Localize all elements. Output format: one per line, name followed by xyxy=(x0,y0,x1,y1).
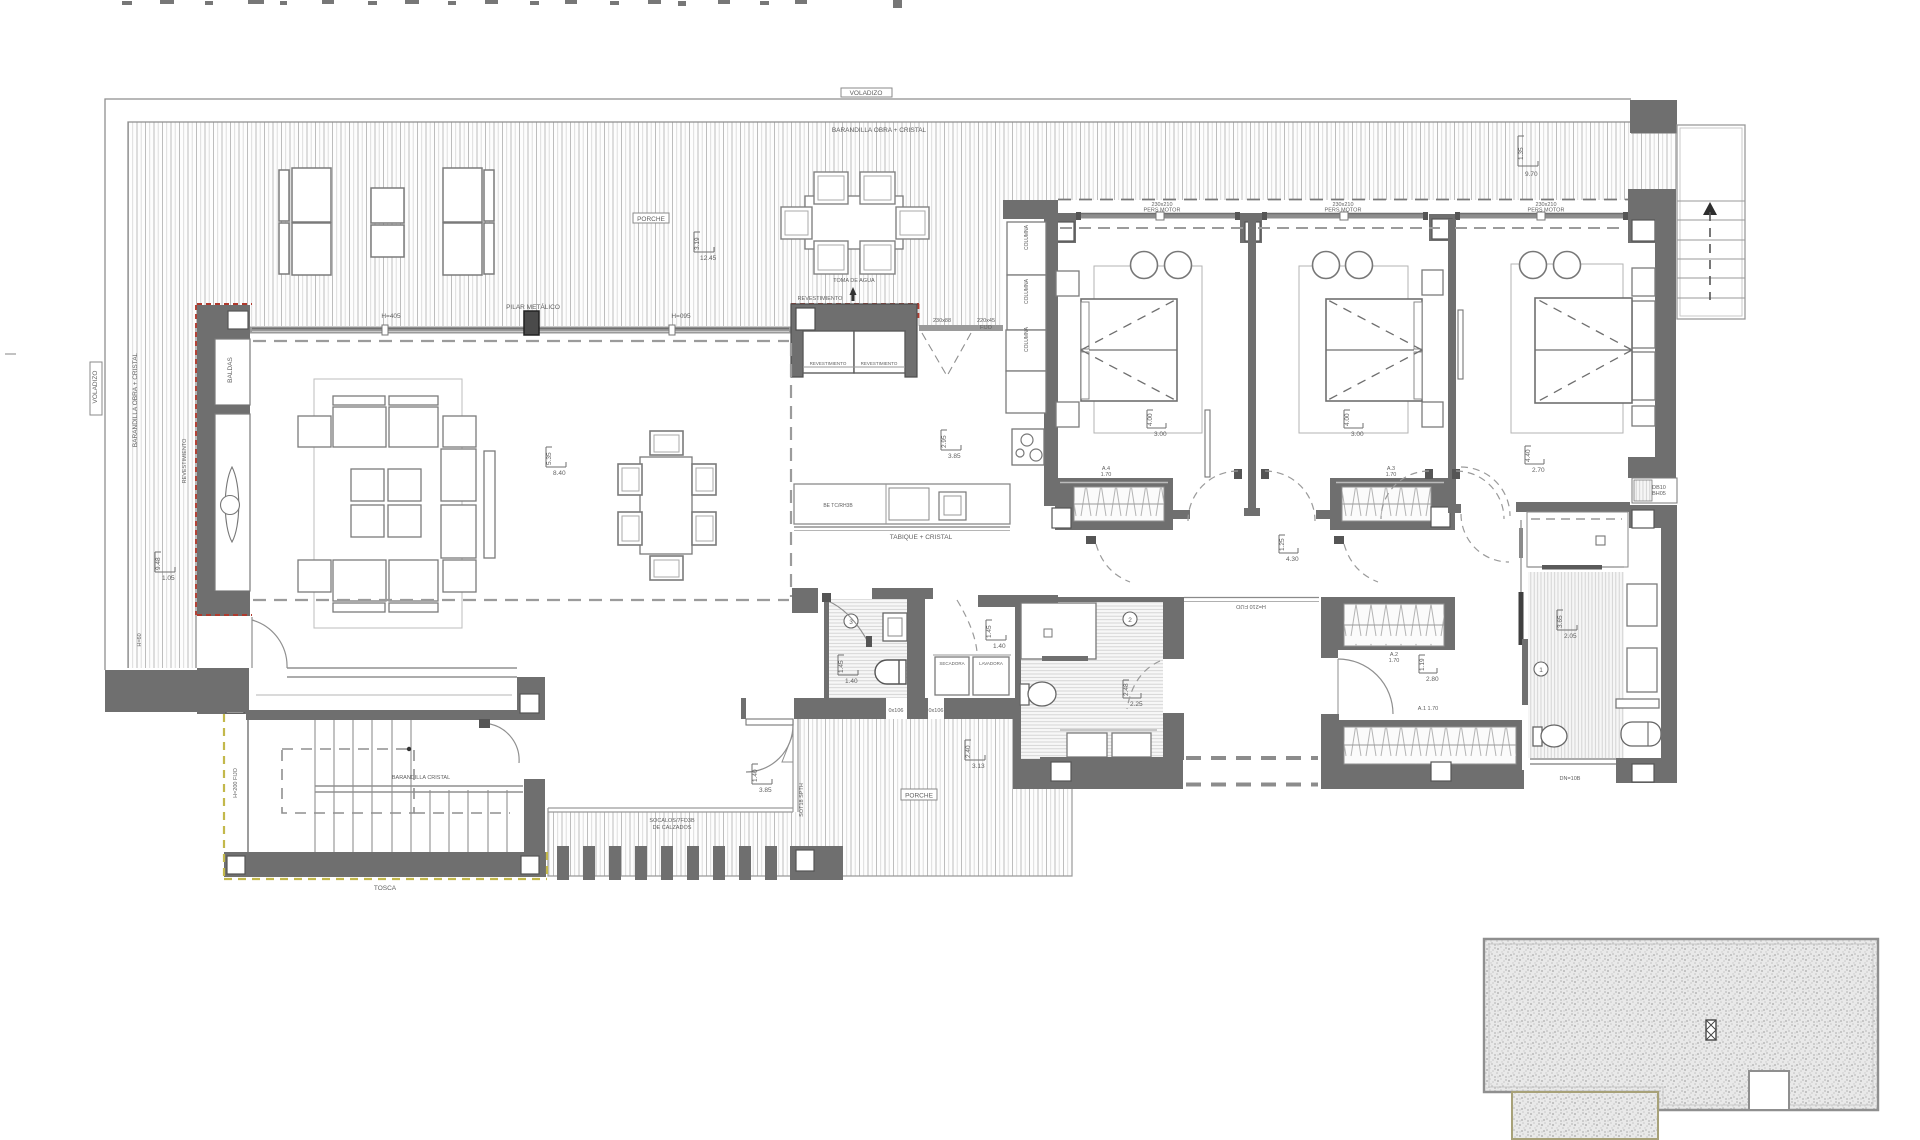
svg-text:3.00: 3.00 xyxy=(1351,431,1364,438)
svg-text:1.45: 1.45 xyxy=(838,660,845,673)
svg-text:230x88: 230x88 xyxy=(933,318,951,324)
svg-text:1.70: 1.70 xyxy=(1389,658,1400,664)
svg-text:TOSCA: TOSCA xyxy=(374,885,397,892)
svg-text:LAVADORA: LAVADORA xyxy=(979,661,1003,666)
svg-text:4.00: 4.00 xyxy=(1147,413,1154,426)
svg-text:12.45: 12.45 xyxy=(700,255,717,262)
svg-text:PORCHE: PORCHE xyxy=(637,216,665,223)
svg-text:PILAR METÁLICO: PILAR METÁLICO xyxy=(506,302,560,311)
svg-text:H=200 FIJO: H=200 FIJO xyxy=(233,767,239,798)
svg-text:BARANDILLA CRISTAL: BARANDILLA CRISTAL xyxy=(392,775,450,781)
svg-text:H=095: H=095 xyxy=(671,313,691,320)
svg-text:1.40: 1.40 xyxy=(993,643,1006,650)
svg-text:8.40: 8.40 xyxy=(553,470,566,477)
svg-text:DE CALZADOS: DE CALZADOS xyxy=(653,825,692,831)
svg-text:4.00: 4.00 xyxy=(1344,413,1351,426)
svg-text:COLUMNA: COLUMNA xyxy=(1024,326,1030,352)
svg-text:DN=10B: DN=10B xyxy=(1560,776,1581,782)
svg-text:BALDAS: BALDAS xyxy=(227,357,234,383)
svg-text:BE TC/RH3B: BE TC/RH3B xyxy=(823,503,853,509)
svg-text:2.80: 2.80 xyxy=(1426,676,1439,683)
svg-text:220x45: 220x45 xyxy=(977,318,995,324)
svg-text:PERS MOTOR: PERS MOTOR xyxy=(1528,208,1565,214)
svg-text:REVESTIMIENTO: REVESTIMIENTO xyxy=(810,361,847,366)
svg-text:1.25: 1.25 xyxy=(1279,538,1286,551)
svg-text:1.45: 1.45 xyxy=(986,625,993,638)
svg-text:REVESTIMIENTO: REVESTIMIENTO xyxy=(182,438,188,484)
svg-text:3.85: 3.85 xyxy=(759,787,772,794)
svg-text:4.40: 4.40 xyxy=(1525,449,1532,462)
svg-text:1.35: 1.35 xyxy=(1518,147,1525,160)
svg-text:REVESTIMIENTO: REVESTIMIENTO xyxy=(861,361,898,366)
svg-text:2.48: 2.48 xyxy=(1123,683,1130,696)
svg-text:3.13: 3.13 xyxy=(972,763,985,770)
svg-text:1.70: 1.70 xyxy=(1386,472,1397,478)
svg-text:A.1 1.70: A.1 1.70 xyxy=(1418,706,1439,712)
svg-text:3.19: 3.19 xyxy=(694,237,701,250)
svg-text:SOCALOS/7FD3B: SOCALOS/7FD3B xyxy=(649,818,695,824)
svg-text:2.70: 2.70 xyxy=(1532,467,1545,474)
svg-text:1.40: 1.40 xyxy=(752,769,759,782)
svg-text:9.70: 9.70 xyxy=(1525,171,1538,178)
svg-text:TABIQUE + CRISTAL: TABIQUE + CRISTAL xyxy=(890,534,953,541)
svg-text:REVESTIMIENTO: REVESTIMIENTO xyxy=(798,296,844,302)
svg-text:0x106: 0x106 xyxy=(929,708,944,714)
svg-text:3.85: 3.85 xyxy=(948,453,961,460)
svg-text:BARANDILLA OBRA + CRISTAL: BARANDILLA OBRA + CRISTAL xyxy=(132,352,139,447)
svg-text:BARANDILLA OBRA + CRISTAL: BARANDILLA OBRA + CRISTAL xyxy=(832,127,927,134)
svg-text:H=60: H=60 xyxy=(137,633,143,646)
svg-text:1.40: 1.40 xyxy=(845,678,858,685)
svg-text:2: 2 xyxy=(1128,617,1132,624)
svg-text:VOLADIZO: VOLADIZO xyxy=(850,90,883,97)
svg-text:VOLADIZO: VOLADIZO xyxy=(92,371,99,404)
svg-text:1.05: 1.05 xyxy=(162,575,175,582)
svg-text:2.95: 2.95 xyxy=(941,435,948,448)
svg-text:TOMA DE AGUA: TOMA DE AGUA xyxy=(833,278,875,284)
svg-text:3.65: 3.65 xyxy=(1557,615,1564,628)
svg-text:H=405: H=405 xyxy=(381,313,401,320)
svg-text:COLUMNA: COLUMNA xyxy=(1024,224,1030,250)
svg-text:H=210 FIJO: H=210 FIJO xyxy=(1235,603,1266,609)
svg-text:2.25: 2.25 xyxy=(1130,701,1143,708)
svg-text:9.48: 9.48 xyxy=(155,557,162,570)
svg-text:SOT18 SPTH: SOT18 SPTH xyxy=(799,783,805,817)
svg-text:FIJO: FIJO xyxy=(980,325,993,331)
svg-text:1.70: 1.70 xyxy=(1101,472,1112,478)
svg-text:COLUMNA: COLUMNA xyxy=(1024,278,1030,304)
svg-text:0x106: 0x106 xyxy=(889,708,904,714)
svg-text:5.35: 5.35 xyxy=(546,452,553,465)
svg-text:2.05: 2.05 xyxy=(1564,633,1577,640)
svg-text:PORCHE: PORCHE xyxy=(905,793,933,800)
svg-text:1.19: 1.19 xyxy=(1419,658,1426,671)
svg-text:SECADORA: SECADORA xyxy=(939,661,964,666)
svg-text:BH05: BH05 xyxy=(1652,491,1666,497)
svg-text:3.00: 3.00 xyxy=(1154,431,1167,438)
svg-text:2.40: 2.40 xyxy=(965,745,972,758)
svg-text:1: 1 xyxy=(1539,667,1543,674)
svg-text:4.30: 4.30 xyxy=(1286,556,1299,563)
